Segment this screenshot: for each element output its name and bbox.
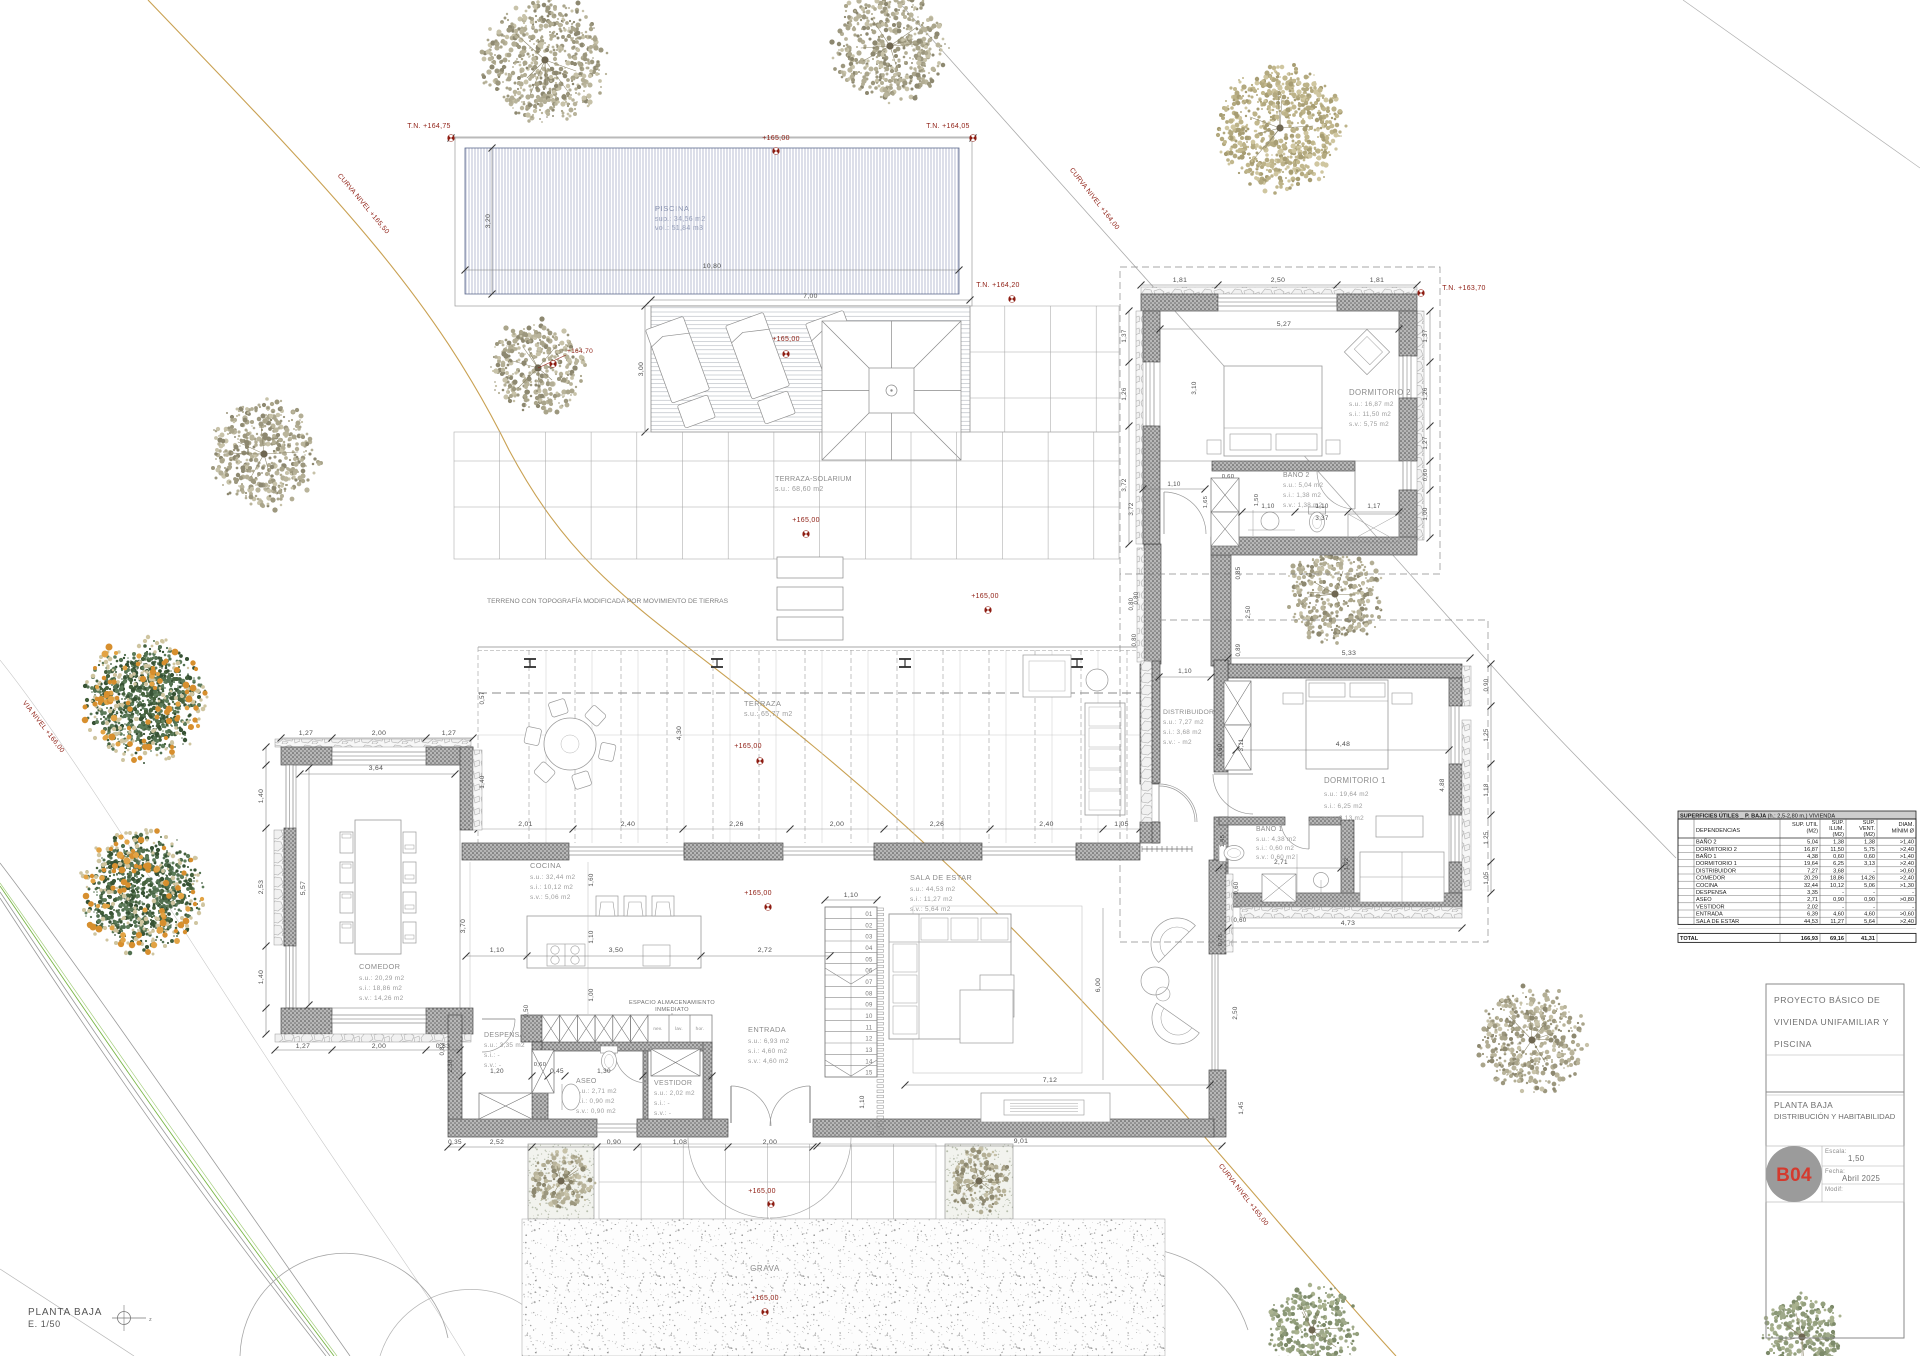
svg-text:1,62: 1,62 xyxy=(1344,858,1350,870)
svg-text:2,72: 2,72 xyxy=(758,947,772,954)
svg-text:3,72: 3,72 xyxy=(1121,478,1128,492)
svg-text:s.v.: 5,64 m2: s.v.: 5,64 m2 xyxy=(910,906,951,913)
svg-text:09: 09 xyxy=(865,1003,873,1009)
svg-text:VESTIDOR: VESTIDOR xyxy=(1696,904,1725,910)
svg-text:-: - xyxy=(1912,904,1914,910)
svg-text:s.v.: 0,90 m2: s.v.: 0,90 m2 xyxy=(576,1108,616,1115)
svg-text:-: - xyxy=(1873,904,1875,910)
svg-text:3,00: 3,00 xyxy=(638,362,645,376)
svg-text:BAÑO 1: BAÑO 1 xyxy=(1256,824,1282,833)
svg-text:PLANTA BAJA: PLANTA BAJA xyxy=(1774,1100,1833,1110)
svg-text:-: - xyxy=(1842,890,1844,896)
svg-text:TERRAZA-SOLARIUM: TERRAZA-SOLARIUM xyxy=(775,474,852,483)
svg-text:SUP. UTIL: SUP. UTIL xyxy=(1792,822,1818,828)
svg-text:1,10: 1,10 xyxy=(1315,503,1329,510)
svg-text:Escala:: Escala: xyxy=(1825,1149,1847,1155)
svg-text:0,80: 0,80 xyxy=(1129,597,1135,610)
svg-text:69,16: 69,16 xyxy=(1830,936,1844,942)
svg-text:3,72: 3,72 xyxy=(1128,502,1135,516)
svg-text:s.u.: 32,44 m2: s.u.: 32,44 m2 xyxy=(530,874,575,881)
svg-text:Modif:: Modif: xyxy=(1825,1187,1843,1193)
svg-text:1,65: 1,65 xyxy=(1203,496,1209,508)
svg-text:5,75: 5,75 xyxy=(1864,847,1875,853)
svg-text:2,00: 2,00 xyxy=(372,1043,386,1050)
svg-text:hor.: hor. xyxy=(696,1026,705,1031)
svg-text:VIVIENDA UNIFAMILIAR Y: VIVIENDA UNIFAMILIAR Y xyxy=(1774,1017,1889,1027)
svg-text:2,30: 2,30 xyxy=(447,1059,454,1073)
svg-text:ENTRADA: ENTRADA xyxy=(748,1025,786,1034)
svg-text:1,17: 1,17 xyxy=(1367,503,1381,510)
svg-text:10,80: 10,80 xyxy=(703,263,722,270)
svg-text:1,10: 1,10 xyxy=(1261,503,1275,510)
svg-text:0,60: 0,60 xyxy=(1234,918,1247,924)
svg-text:PLANTA BAJA: PLANTA BAJA xyxy=(28,1307,102,1318)
svg-text:Abril 2025: Abril 2025 xyxy=(1842,1174,1880,1183)
svg-text:1,10: 1,10 xyxy=(1178,668,1192,675)
svg-text:1,10: 1,10 xyxy=(490,947,504,954)
svg-text:MÍNIM Ø: MÍNIM Ø xyxy=(1892,828,1915,835)
svg-text:5,06: 5,06 xyxy=(1864,883,1875,889)
svg-text:1,26: 1,26 xyxy=(1422,387,1429,401)
svg-text:1,38: 1,38 xyxy=(1833,840,1844,846)
svg-text:TERRENO CON TOPOGRAFÍA MODIFIC: TERRENO CON TOPOGRAFÍA MODIFICADA POR MO… xyxy=(487,596,729,605)
svg-text:3,10: 3,10 xyxy=(1191,381,1198,395)
svg-text:0,60: 0,60 xyxy=(1423,469,1429,481)
svg-text:T.N. +163,70: T.N. +163,70 xyxy=(1442,285,1486,292)
svg-text:s.u.: 19,64 m2: s.u.: 19,64 m2 xyxy=(1324,791,1369,798)
svg-text:s.u.: 6,93 m2: s.u.: 6,93 m2 xyxy=(748,1038,790,1045)
svg-text:4,30: 4,30 xyxy=(676,726,683,740)
svg-text:2,00: 2,00 xyxy=(763,1139,777,1146)
svg-text:1,27: 1,27 xyxy=(296,1043,310,1050)
svg-text:s.u.: 20,29 m2: s.u.: 20,29 m2 xyxy=(359,975,404,982)
svg-text:DORMITORIO 2: DORMITORIO 2 xyxy=(1696,847,1737,853)
svg-text:0,90: 0,90 xyxy=(1833,897,1844,903)
svg-text:s.i.: 11,27 m2: s.i.: 11,27 m2 xyxy=(910,896,953,903)
svg-text:11: 11 xyxy=(866,1025,873,1031)
svg-text:1,37: 1,37 xyxy=(1121,329,1128,343)
svg-text:BAÑO 1: BAÑO 1 xyxy=(1696,853,1717,860)
svg-text:6,25: 6,25 xyxy=(1833,861,1844,867)
svg-text:1,60: 1,60 xyxy=(588,873,595,887)
svg-text:08: 08 xyxy=(865,991,873,997)
svg-text:2,50: 2,50 xyxy=(1246,605,1252,618)
svg-text:s.i.: 18,86 m2: s.i.: 18,86 m2 xyxy=(359,985,402,992)
svg-text:s.v.: 14,26 m2: s.v.: 14,26 m2 xyxy=(359,995,404,1002)
svg-text:3,20: 3,20 xyxy=(485,214,492,228)
svg-text:+165,00: +165,00 xyxy=(971,593,999,600)
svg-text:TOTAL: TOTAL xyxy=(1680,936,1699,942)
svg-text:s.v.: - m2: s.v.: - m2 xyxy=(1163,739,1192,746)
svg-text:s.u.: 16,87 m2: s.u.: 16,87 m2 xyxy=(1349,401,1394,408)
svg-text:2,01: 2,01 xyxy=(518,821,532,828)
svg-text:-: - xyxy=(1873,890,1875,896)
svg-text:0,80: 0,80 xyxy=(1132,633,1138,646)
svg-text:0,60: 0,60 xyxy=(534,1062,546,1068)
svg-text:B04: B04 xyxy=(1776,1165,1812,1186)
svg-text:0,90: 0,90 xyxy=(1864,897,1875,903)
svg-text:(M2): (M2) xyxy=(1864,832,1876,838)
svg-text:2,50: 2,50 xyxy=(1271,277,1285,284)
svg-text:nev.: nev. xyxy=(653,1026,662,1031)
svg-text:s.i.: 1,38 m2: s.i.: 1,38 m2 xyxy=(1283,492,1321,499)
svg-text:0,85: 0,85 xyxy=(1236,566,1242,579)
svg-text:15: 15 xyxy=(865,1071,873,1077)
svg-text:32,44: 32,44 xyxy=(1804,883,1818,889)
svg-text:1,40: 1,40 xyxy=(258,789,265,803)
svg-text:1,05: 1,05 xyxy=(1114,821,1128,828)
svg-text:0,45: 0,45 xyxy=(550,1068,564,1075)
svg-text:0,89: 0,89 xyxy=(1236,643,1242,656)
svg-text:s.i.: 0,60 m2: s.i.: 0,60 m2 xyxy=(1256,845,1294,852)
svg-text:COMEDOR: COMEDOR xyxy=(359,962,400,971)
svg-text:s.v.: 3,13 m2: s.v.: 3,13 m2 xyxy=(1324,815,1364,822)
svg-text:4,73: 4,73 xyxy=(1341,920,1355,927)
svg-text:12: 12 xyxy=(865,1037,873,1043)
svg-text:14: 14 xyxy=(865,1059,873,1065)
svg-text:16,87: 16,87 xyxy=(1804,847,1818,853)
svg-text:1,81: 1,81 xyxy=(1173,277,1187,284)
svg-text:s.i.: -: s.i.: - xyxy=(654,1100,670,1107)
svg-text:+165,00: +165,00 xyxy=(734,743,762,750)
svg-text:5,27: 5,27 xyxy=(1277,321,1291,328)
svg-text:3,37: 3,37 xyxy=(1315,515,1329,522)
svg-text:2,40: 2,40 xyxy=(1039,821,1053,828)
svg-text:1,38: 1,38 xyxy=(1864,840,1875,846)
svg-text:SALA DE ESTAR: SALA DE ESTAR xyxy=(910,873,972,882)
svg-text:1,50: 1,50 xyxy=(1848,1154,1865,1163)
svg-text:s.u.: 65,77 m2: s.u.: 65,77 m2 xyxy=(744,711,793,718)
svg-text:s.i.: 3,68 m2: s.i.: 3,68 m2 xyxy=(1163,729,1202,736)
svg-text:1,08: 1,08 xyxy=(673,1139,687,1146)
svg-text:3,11: 3,11 xyxy=(1238,738,1245,751)
svg-text:>1,40: >1,40 xyxy=(1900,840,1914,846)
svg-text:2,00: 2,00 xyxy=(372,730,386,737)
svg-text:s.u.: 2,02 m2: s.u.: 2,02 m2 xyxy=(654,1090,695,1097)
svg-text:01: 01 xyxy=(865,912,873,918)
svg-text:1,40: 1,40 xyxy=(479,775,486,789)
svg-text:DESPENSA: DESPENSA xyxy=(1696,890,1727,896)
svg-text:s.u.: 5,04 m2: s.u.: 5,04 m2 xyxy=(1283,482,1323,489)
svg-text:05: 05 xyxy=(865,957,873,963)
svg-text:1,45: 1,45 xyxy=(1238,1101,1245,1115)
svg-text:0,83: 0,83 xyxy=(440,1042,446,1055)
svg-text:GRAVA: GRAVA xyxy=(750,1264,780,1273)
svg-text:E. 1/50: E. 1/50 xyxy=(28,1319,61,1329)
svg-text:0,60: 0,60 xyxy=(1833,854,1844,860)
svg-text:3,70: 3,70 xyxy=(460,919,467,933)
svg-text:DESPENSA: DESPENSA xyxy=(484,1032,525,1039)
svg-text:2,26: 2,26 xyxy=(729,821,743,828)
svg-text:>0,60: >0,60 xyxy=(1900,868,1914,874)
svg-text:+165,00: +165,00 xyxy=(762,135,790,142)
svg-text:s.v.: 5,06 m2: s.v.: 5,06 m2 xyxy=(530,894,571,901)
svg-text:18,86: 18,86 xyxy=(1830,876,1844,882)
svg-text:1,45: 1,45 xyxy=(1220,835,1226,847)
svg-text:0,60: 0,60 xyxy=(1222,474,1234,480)
svg-text:PISCINA: PISCINA xyxy=(655,204,690,213)
svg-text:DISTRIBUIDOR: DISTRIBUIDOR xyxy=(1696,868,1736,874)
svg-text:9,01: 9,01 xyxy=(1014,1138,1028,1145)
svg-text:COMEDOR: COMEDOR xyxy=(1696,876,1725,882)
svg-text:0,50: 0,50 xyxy=(524,1004,530,1017)
svg-text:>2,40: >2,40 xyxy=(1900,847,1914,853)
svg-text:0,75: 0,75 xyxy=(1218,934,1224,946)
svg-text:1,27: 1,27 xyxy=(442,730,456,737)
svg-text:>2,40: >2,40 xyxy=(1900,861,1914,867)
svg-text:0,90: 0,90 xyxy=(607,1139,621,1146)
svg-text:>2,40: >2,40 xyxy=(1900,876,1914,882)
svg-text:>0,60: >0,60 xyxy=(1900,912,1914,918)
svg-text:s.v.: 5,75 m2: s.v.: 5,75 m2 xyxy=(1349,421,1389,428)
svg-text:s.v.: 4,60 m2: s.v.: 4,60 m2 xyxy=(748,1058,789,1065)
svg-text:s.v.: -: s.v.: - xyxy=(654,1110,671,1117)
svg-text:5,04: 5,04 xyxy=(1807,840,1818,846)
svg-text:1,10: 1,10 xyxy=(588,930,595,944)
svg-text:19,64: 19,64 xyxy=(1804,861,1818,867)
svg-text:T.N. +164,20: T.N. +164,20 xyxy=(976,282,1020,289)
svg-text:s.u.: 68,60 m2: s.u.: 68,60 m2 xyxy=(775,486,824,493)
svg-text:s.i.: -: s.i.: - xyxy=(484,1052,500,1059)
svg-text:4,88: 4,88 xyxy=(1439,778,1446,792)
svg-text:>2,40: >2,40 xyxy=(1900,919,1914,925)
svg-text:1,27: 1,27 xyxy=(1422,436,1429,450)
svg-text:3,13: 3,13 xyxy=(1864,861,1875,867)
svg-text:20,29: 20,29 xyxy=(1804,876,1818,882)
svg-text:2,26: 2,26 xyxy=(930,821,944,828)
svg-text:0,60: 0,60 xyxy=(1864,854,1875,860)
svg-text:TERRAZA: TERRAZA xyxy=(744,699,781,708)
svg-text:06: 06 xyxy=(865,969,873,975)
svg-text:1,00: 1,00 xyxy=(588,988,595,1002)
svg-text:DORMITORIO 1: DORMITORIO 1 xyxy=(1696,861,1737,867)
svg-text:6,39: 6,39 xyxy=(1807,912,1818,918)
svg-text:INMEDIATO: INMEDIATO xyxy=(655,1007,689,1013)
svg-text:(M2): (M2) xyxy=(1807,829,1819,835)
svg-text:11,50: 11,50 xyxy=(1830,847,1844,853)
svg-text:s.i.: 10,12 m2: s.i.: 10,12 m2 xyxy=(530,884,573,891)
svg-text:1,37: 1,37 xyxy=(1422,329,1429,343)
svg-text:6,00: 6,00 xyxy=(1095,978,1102,992)
svg-text:02: 02 xyxy=(865,923,873,929)
svg-text:5,57: 5,57 xyxy=(300,881,307,895)
svg-text:+165,00: +165,00 xyxy=(744,890,772,897)
svg-text:s.i.: 0,90 m2: s.i.: 0,90 m2 xyxy=(576,1098,615,1105)
svg-text:0,57: 0,57 xyxy=(480,691,486,704)
svg-text:COCINA: COCINA xyxy=(1696,883,1718,889)
svg-text:0,60: 0,60 xyxy=(1234,881,1240,894)
svg-text:3,64: 3,64 xyxy=(369,765,383,772)
svg-text:s.u.: 3,35 m2: s.u.: 3,35 m2 xyxy=(484,1042,525,1049)
svg-text:>1,30: >1,30 xyxy=(1900,883,1914,889)
svg-text:PROYECTO BÁSICO DE: PROYECTO BÁSICO DE xyxy=(1774,995,1880,1005)
svg-text:DORMITORIO 1: DORMITORIO 1 xyxy=(1324,776,1386,785)
svg-text:COCINA: COCINA xyxy=(530,861,561,870)
svg-text:s.u.: 7,27 m2: s.u.: 7,27 m2 xyxy=(1163,719,1204,726)
svg-text:s.i.: 11,50 m2: s.i.: 11,50 m2 xyxy=(1349,411,1391,418)
svg-text:5,64: 5,64 xyxy=(1864,919,1875,925)
svg-text:T.N. +164,05: T.N. +164,05 xyxy=(926,123,970,130)
svg-text:+165,00: +165,00 xyxy=(772,336,800,343)
svg-text:0,60: 0,60 xyxy=(1218,743,1224,756)
svg-text:>0,80: >0,80 xyxy=(1900,897,1914,903)
svg-text:03: 03 xyxy=(865,935,873,941)
svg-text:BAÑO 2: BAÑO 2 xyxy=(1696,839,1717,846)
svg-text:4,48: 4,48 xyxy=(1336,741,1350,748)
svg-text:DIAM.: DIAM. xyxy=(1898,822,1914,828)
svg-text:DORMITORIO 2: DORMITORIO 2 xyxy=(1349,388,1411,397)
svg-text:10: 10 xyxy=(865,1014,873,1020)
svg-text:0,90: 0,90 xyxy=(1484,678,1490,691)
svg-text:ASEO: ASEO xyxy=(1696,897,1712,903)
svg-text:z: z xyxy=(149,1317,152,1323)
svg-text:DISTRIBUIDOR: DISTRIBUIDOR xyxy=(1163,709,1214,716)
svg-text:DISTRIBUCIÓN Y HABITABILIDAD: DISTRIBUCIÓN Y HABITABILIDAD xyxy=(1774,1112,1896,1121)
svg-text:PISCINA: PISCINA xyxy=(1774,1039,1812,1049)
svg-text:1,25: 1,25 xyxy=(1483,831,1490,845)
svg-text:s.i.: 6,25 m2: s.i.: 6,25 m2 xyxy=(1324,803,1363,810)
svg-text:+164,70: +164,70 xyxy=(567,348,593,355)
svg-text:2,53: 2,53 xyxy=(258,880,265,894)
svg-text:s.u.: 2,71 m2: s.u.: 2,71 m2 xyxy=(576,1088,617,1095)
svg-text:s.i.: 4,60 m2: s.i.: 4,60 m2 xyxy=(748,1048,787,1055)
svg-text:+165,00: +165,00 xyxy=(751,1295,779,1302)
svg-text:lav.: lav. xyxy=(675,1026,683,1031)
svg-text:BAÑO 2: BAÑO 2 xyxy=(1283,470,1309,479)
svg-text:-: - xyxy=(1873,868,1875,874)
svg-text:sup.: 34,56 m2: sup.: 34,56 m2 xyxy=(655,216,706,223)
svg-text:1,26: 1,26 xyxy=(1121,387,1128,401)
svg-text:1,50: 1,50 xyxy=(1254,494,1260,506)
svg-text:1,10: 1,10 xyxy=(859,1095,866,1109)
svg-text:ASEO: ASEO xyxy=(576,1078,597,1085)
svg-text:3,68: 3,68 xyxy=(1833,868,1844,874)
svg-text:(M2): (M2) xyxy=(1833,832,1845,838)
svg-text:+165,00: +165,00 xyxy=(792,517,820,524)
svg-text:11,27: 11,27 xyxy=(1830,919,1844,925)
svg-text:ESPACIO ALMACENAMIENTO: ESPACIO ALMACENAMIENTO xyxy=(629,1000,715,1006)
svg-text:2,00: 2,00 xyxy=(830,821,844,828)
svg-text:4,38: 4,38 xyxy=(1807,854,1818,860)
svg-text:3,50: 3,50 xyxy=(609,947,623,954)
svg-text:s.u.: 4,38 m2: s.u.: 4,38 m2 xyxy=(1256,836,1296,843)
svg-text:-: - xyxy=(1912,890,1914,896)
svg-text:2,40: 2,40 xyxy=(621,821,635,828)
svg-text:1,27: 1,27 xyxy=(299,730,313,737)
svg-text:14,26: 14,26 xyxy=(1861,876,1875,882)
svg-text:166,93: 166,93 xyxy=(1801,936,1818,942)
svg-text:2,02: 2,02 xyxy=(1807,904,1818,910)
svg-text:SALA DE ESTAR: SALA DE ESTAR xyxy=(1696,919,1739,925)
svg-text:3,35: 3,35 xyxy=(1807,890,1818,896)
svg-text:SUPERFICIES ÚTILES _ P. BAJA (: SUPERFICIES ÚTILES _ P. BAJA (h.: 2,5-2,… xyxy=(1680,812,1835,819)
svg-text:7,00: 7,00 xyxy=(803,293,817,300)
svg-text:1,81: 1,81 xyxy=(1370,277,1384,284)
svg-text:1,10: 1,10 xyxy=(844,892,858,899)
svg-text:04: 04 xyxy=(865,946,873,952)
svg-text:DEPENDENCIAS: DEPENDENCIAS xyxy=(1696,828,1740,834)
svg-text:1,25: 1,25 xyxy=(1483,728,1490,742)
svg-text:4,60: 4,60 xyxy=(1833,912,1844,918)
svg-text:1,40: 1,40 xyxy=(258,970,265,984)
svg-text:1,18: 1,18 xyxy=(1483,783,1490,797)
svg-text:2,71: 2,71 xyxy=(1807,897,1818,903)
svg-text:-: - xyxy=(1842,904,1844,910)
svg-text:10,12: 10,12 xyxy=(1830,883,1844,889)
svg-text:2,50: 2,50 xyxy=(1232,1006,1239,1020)
svg-text:+165,00: +165,00 xyxy=(748,1188,776,1195)
svg-text:s.u.: 44,53 m2: s.u.: 44,53 m2 xyxy=(910,886,955,893)
svg-text:2,71: 2,71 xyxy=(1274,859,1288,866)
svg-text:1,10: 1,10 xyxy=(1167,481,1181,488)
svg-text:ENTRADA: ENTRADA xyxy=(1696,912,1723,918)
svg-text:1,05: 1,05 xyxy=(1483,871,1490,885)
svg-text:>1,40: >1,40 xyxy=(1900,854,1914,860)
svg-text:2,52: 2,52 xyxy=(490,1139,504,1146)
svg-text:13: 13 xyxy=(865,1048,873,1054)
svg-text:1,30: 1,30 xyxy=(597,1068,611,1075)
svg-text:0,35: 0,35 xyxy=(448,1139,462,1146)
svg-text:vol.: 51,84 m3: vol.: 51,84 m3 xyxy=(655,225,703,232)
svg-text:4,60: 4,60 xyxy=(1864,912,1875,918)
svg-text:07: 07 xyxy=(865,980,873,986)
svg-text:5,33: 5,33 xyxy=(1342,650,1356,657)
svg-text:1,20: 1,20 xyxy=(490,1068,504,1075)
svg-text:41,31: 41,31 xyxy=(1861,936,1875,942)
svg-text:7,27: 7,27 xyxy=(1807,868,1818,874)
svg-text:7,12: 7,12 xyxy=(1043,1077,1057,1084)
svg-text:T.N. +164,75: T.N. +164,75 xyxy=(407,123,451,130)
svg-text:VESTIDOR: VESTIDOR xyxy=(654,1080,692,1087)
svg-text:44,53: 44,53 xyxy=(1804,919,1818,925)
svg-text:1,00: 1,00 xyxy=(1422,507,1429,521)
